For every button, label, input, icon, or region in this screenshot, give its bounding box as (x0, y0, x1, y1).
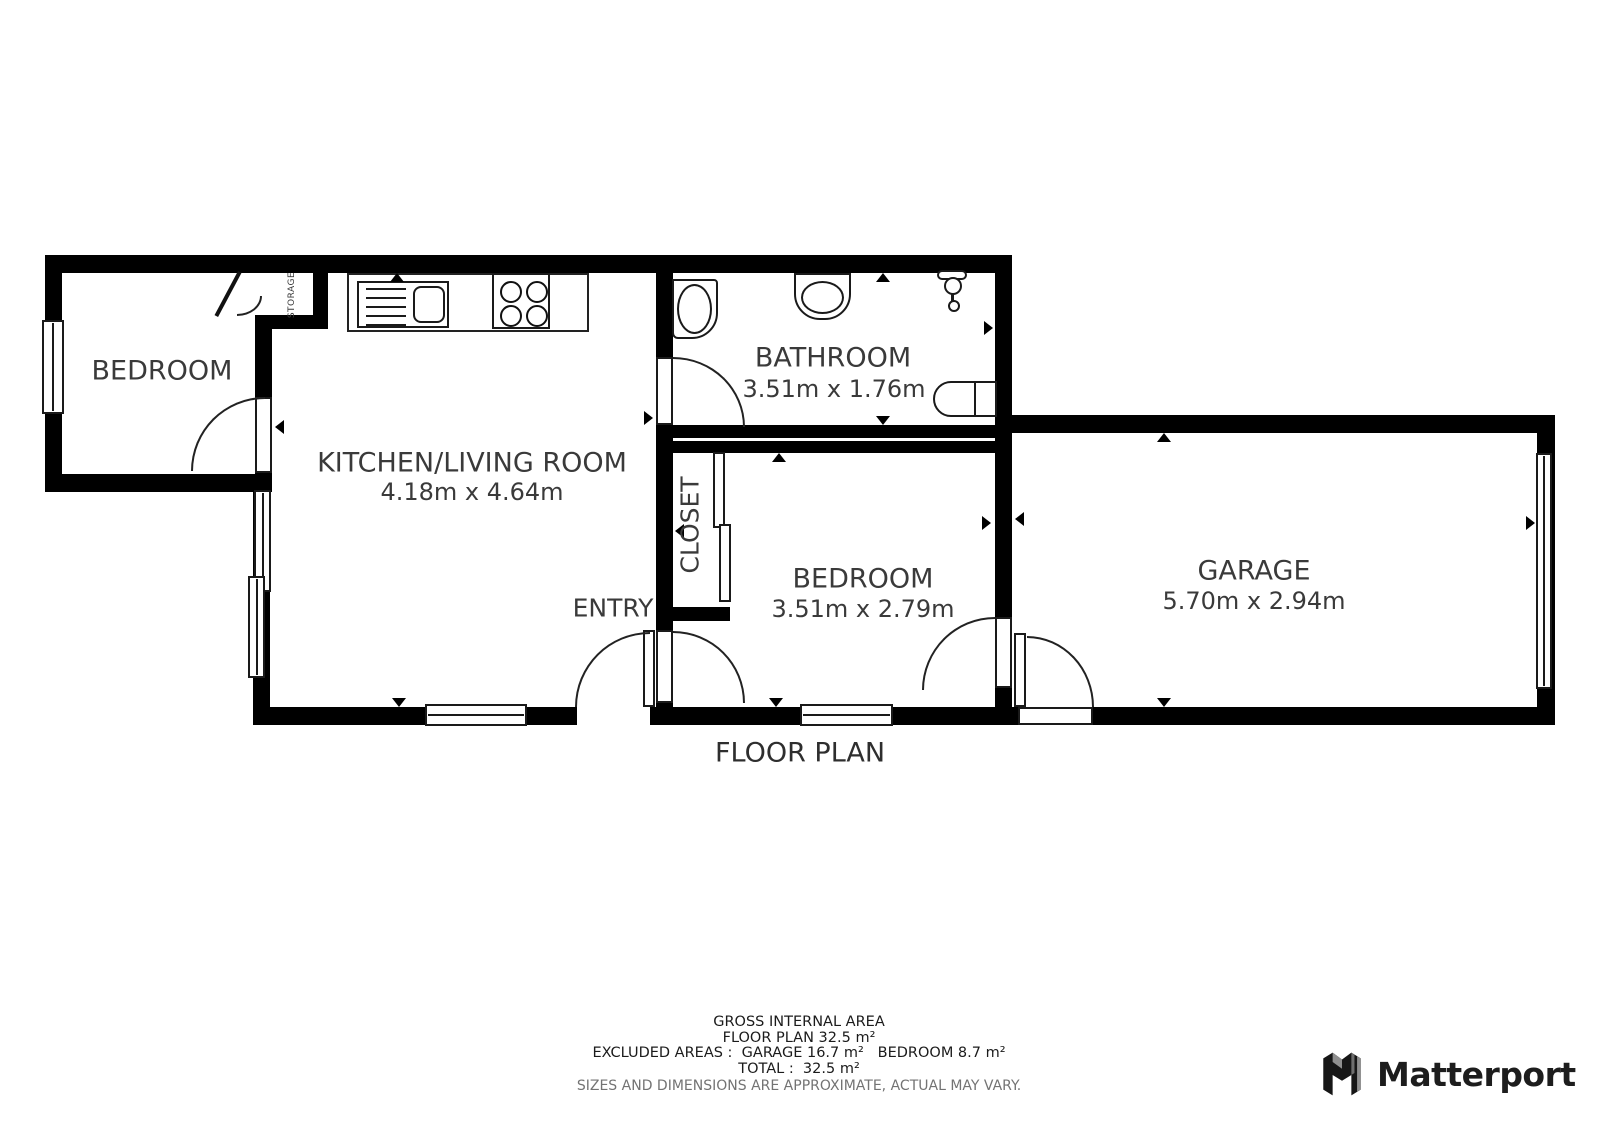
gross-internal-area-heading: GROSS INTERNAL AREA (577, 1015, 1021, 1031)
door-swing-arc (575, 632, 650, 707)
wall-segment (893, 707, 1018, 725)
garage-door-opening (1018, 707, 1093, 725)
direction-marker (644, 411, 653, 425)
direction-marker (1157, 433, 1171, 442)
matterport-branding: Matterport (1316, 1048, 1576, 1100)
door-swing-arc (237, 296, 262, 316)
direction-marker (390, 273, 404, 282)
floor-plan-page: BEDROOM KITCHEN/LIVING ROOM 4.18m x 4.64… (0, 0, 1600, 1131)
wall-segment (650, 707, 800, 725)
wall-segment (995, 415, 1555, 433)
sink-drainer-line (366, 324, 406, 326)
door-leaf (656, 357, 673, 425)
room-label-garage: GARAGE (1197, 556, 1310, 587)
wall-segment (527, 707, 577, 725)
floor-plan-area-line: FLOOR PLAN 32.5 m² (577, 1031, 1021, 1047)
window-pane-line (256, 579, 258, 675)
wall-segment (45, 474, 272, 492)
room-label-kitchen-living: KITCHEN/LIVING ROOM (317, 448, 627, 479)
window (1536, 453, 1552, 689)
room-dims-garage: 5.70m x 2.94m (1162, 587, 1345, 615)
stove-burner-icon (526, 305, 548, 327)
area-summary: GROSS INTERNAL AREA FLOOR PLAN 32.5 m² E… (577, 1015, 1021, 1094)
wall-segment (1093, 707, 1555, 725)
stove-burner-icon (500, 281, 522, 303)
direction-marker (982, 516, 991, 530)
matterport-wordmark: Matterport (1377, 1055, 1576, 1094)
door-leaf (1014, 633, 1026, 707)
room-label-bathroom: BATHROOM (755, 343, 911, 374)
matterport-logo-icon (1316, 1048, 1368, 1100)
excluded-areas-line: EXCLUDED AREAS : GARAGE 16.7 m² BEDROOM … (577, 1046, 1021, 1062)
room-dims-bedroom-middle: 3.51m x 2.79m (771, 595, 954, 623)
closet-sliding-door (713, 452, 725, 528)
toilet-bowl-icon (677, 284, 712, 334)
door-swing-arc (673, 357, 745, 427)
direction-marker (392, 698, 406, 707)
window (800, 704, 893, 726)
window-pane-line (1543, 456, 1545, 686)
door-swing-arc (922, 617, 995, 690)
room-label-bedroom-left: BEDROOM (92, 356, 233, 387)
window (42, 320, 64, 414)
direction-marker (772, 453, 786, 462)
stove-burner-icon (500, 305, 522, 327)
room-dims-kitchen-living: 4.18m x 4.64m (380, 478, 563, 506)
direction-marker (984, 321, 993, 335)
window-pane-line (428, 714, 524, 716)
sink-bowl-icon (801, 281, 844, 314)
direction-marker (1526, 516, 1535, 530)
door-leaf (656, 630, 673, 703)
direction-marker (1015, 512, 1024, 526)
direction-marker (876, 416, 890, 425)
direction-marker (275, 420, 284, 434)
floor-plan-title: FLOOR PLAN (715, 738, 885, 769)
room-label-storage: STORAGE (287, 272, 297, 318)
sink-drainer-line (366, 297, 406, 299)
room-label-closet: CLOSET (676, 476, 705, 573)
entry-door-opening (577, 707, 650, 725)
sink-drainer-line (366, 306, 406, 308)
disclaimer-text: SIZES AND DIMENSIONS ARE APPROXIMATE, AC… (577, 1078, 1021, 1094)
door-swing-arc (191, 397, 265, 471)
sink-basin-icon (413, 286, 445, 323)
window (248, 576, 265, 678)
sink-drainer-line (366, 288, 406, 290)
door-leaf (995, 617, 1012, 688)
wall-segment (45, 255, 1012, 273)
window (425, 704, 527, 726)
room-dims-bathroom: 3.51m x 1.76m (742, 375, 925, 403)
direction-marker (876, 273, 890, 282)
sink-drainer-line (366, 315, 406, 317)
wall-segment (656, 441, 1012, 453)
total-area-line: TOTAL : 32.5 m² (577, 1062, 1021, 1078)
window-pane-line (803, 714, 890, 716)
direction-marker (1157, 698, 1171, 707)
toilet-icon (933, 381, 997, 417)
door-swing-arc (1027, 636, 1094, 707)
closet-sliding-door (719, 524, 731, 602)
toilet-tank-line (974, 382, 976, 416)
door-swing-arc (673, 631, 745, 703)
room-label-bedroom-middle: BEDROOM (793, 564, 934, 595)
window-pane-line (262, 493, 264, 589)
direction-marker (769, 698, 783, 707)
room-label-entry: ENTRY (573, 594, 654, 623)
shower-knob-icon (948, 300, 960, 312)
window-pane-line (52, 323, 54, 411)
wall-segment (253, 707, 425, 725)
stove-burner-icon (526, 281, 548, 303)
wall-segment (656, 607, 730, 621)
